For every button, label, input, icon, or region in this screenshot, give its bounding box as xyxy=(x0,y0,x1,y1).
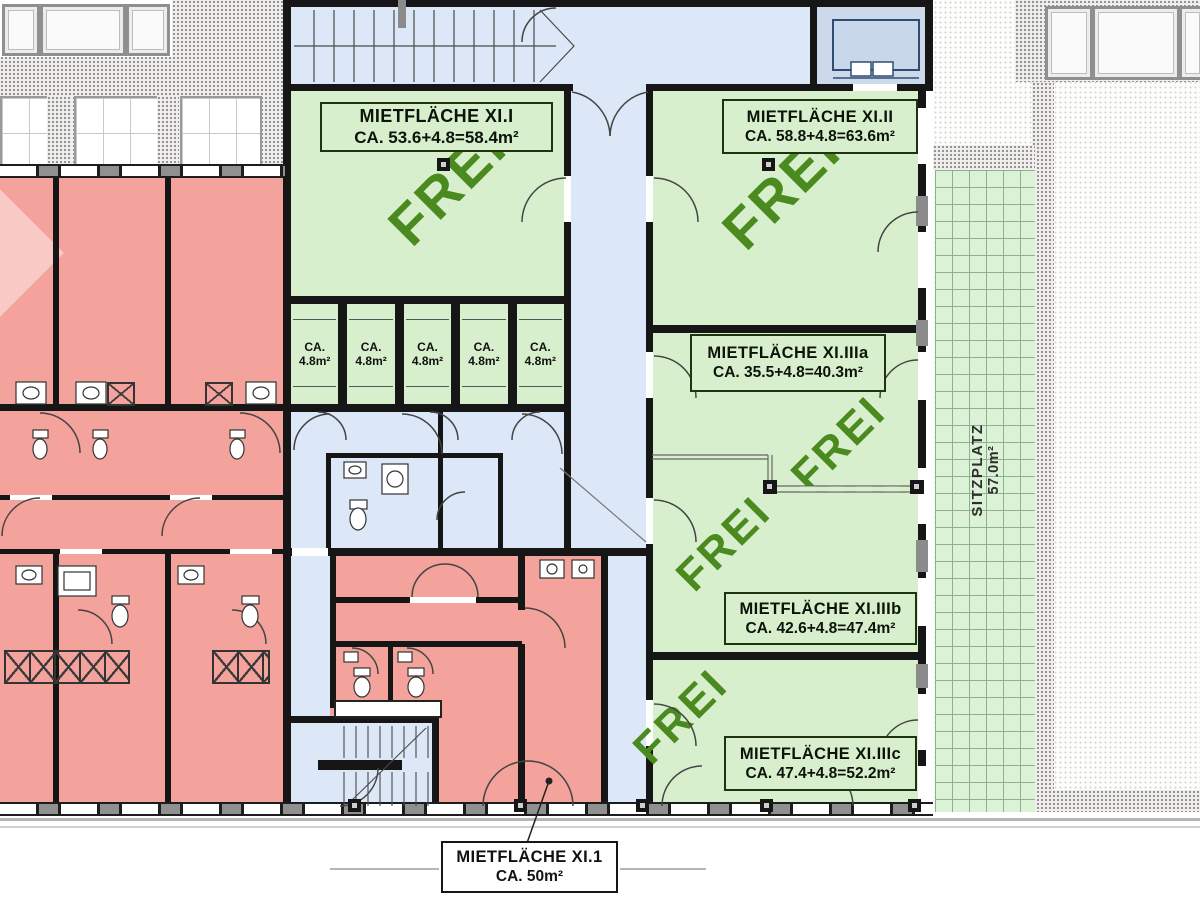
room-area: CA. 53.6+4.8=58.4m² xyxy=(354,128,518,148)
window-frame xyxy=(126,4,170,56)
corridor-lower-right xyxy=(607,556,648,808)
terrace-gravel-band-left xyxy=(1032,82,1054,792)
cell-area: 4.8m² xyxy=(525,354,556,368)
cell-area: 4.8m² xyxy=(355,354,386,368)
wardrobe-band xyxy=(4,650,130,684)
wardrobe-box xyxy=(205,382,233,406)
wall-segment xyxy=(165,554,171,806)
column-marker xyxy=(760,799,773,812)
label-xi-iiib: MIETFLÄCHE XI.IIIb CA. 42.6+4.8=47.4m² xyxy=(724,592,917,645)
skylight-divider xyxy=(157,96,178,164)
column-marker xyxy=(348,799,361,812)
skylight xyxy=(0,96,49,168)
wall-segment xyxy=(388,647,393,702)
label-xi-iiia: MIETFLÄCHE XI.IIIa CA. 35.5+4.8=40.3m² xyxy=(690,334,886,392)
wall-segment xyxy=(432,716,439,812)
room-name: MIETFLÄCHE XI.IIIa xyxy=(707,344,868,363)
wc-common-block xyxy=(285,412,650,554)
room-area: CA. 58.8+4.8=63.6m² xyxy=(745,128,895,146)
room-name: MIETFLÄCHE XI.IIIb xyxy=(739,600,901,619)
wardrobe-box xyxy=(107,382,135,406)
wall-segment xyxy=(326,453,331,553)
door-opening xyxy=(918,352,926,400)
wall-pier xyxy=(916,196,928,226)
wall-segment xyxy=(318,760,402,770)
storage-cell: CA.4.8m² xyxy=(395,304,451,404)
storage-cell: CA.4.8m² xyxy=(291,304,338,404)
wall-segment xyxy=(646,652,926,660)
window-frame xyxy=(1045,6,1093,80)
room-name: MIETFLÄCHE XI.II xyxy=(747,108,894,127)
storage-cell: CA.4.8m² xyxy=(338,304,394,404)
wall-segment xyxy=(326,453,503,458)
wall-segment xyxy=(283,548,650,556)
storage-niche xyxy=(334,700,442,718)
door-opening xyxy=(10,495,52,500)
column-marker xyxy=(437,158,450,171)
room-name: MIETFLÄCHE XI.IIIc xyxy=(740,745,901,764)
door-opening xyxy=(646,498,653,544)
wall-segment xyxy=(810,0,817,90)
room-area: CA. 47.4+4.8=52.2m² xyxy=(746,765,896,783)
window-frame xyxy=(2,4,40,56)
cell-label: CA. xyxy=(474,340,495,354)
storage-cell: CA.4.8m² xyxy=(508,304,564,404)
skylight xyxy=(180,96,262,168)
wall-segment xyxy=(283,296,571,304)
door-opening xyxy=(646,352,653,398)
facade-line xyxy=(0,818,1200,821)
skylight xyxy=(74,96,159,168)
door-opening xyxy=(918,108,926,164)
door-opening xyxy=(230,549,272,554)
floor-plan: CA.4.8m² CA.4.8m² CA.4.8m² CA.4.8m² CA.4… xyxy=(0,0,1200,901)
room-name: MIETFLÄCHE XI.1 xyxy=(456,848,602,867)
door-opening xyxy=(918,468,926,524)
cell-label: CA. xyxy=(417,340,438,354)
door-opening xyxy=(646,176,653,222)
cell-area: 4.8m² xyxy=(412,354,443,368)
label-xi-iiic: MIETFLÄCHE XI.IIIc CA. 47.4+4.8=52.2m² xyxy=(724,736,917,791)
sitzplatz-area: 57.0m² xyxy=(986,446,1002,495)
column-marker xyxy=(763,480,777,494)
column-marker xyxy=(910,480,924,494)
facade-line xyxy=(0,826,1200,828)
door-opening xyxy=(918,578,926,626)
column-marker xyxy=(762,158,775,171)
wall-segment xyxy=(283,404,571,412)
wall-segment xyxy=(438,412,443,552)
cell-label: CA. xyxy=(530,340,551,354)
window-frame xyxy=(1092,6,1180,80)
door-opening xyxy=(918,232,926,288)
cell-label: CA. xyxy=(361,340,382,354)
room-area: CA. 35.5+4.8=40.3m² xyxy=(713,364,863,382)
wall-pier xyxy=(916,664,928,688)
label-xi-i: MIETFLÄCHE XI.I CA. 53.6+4.8=58.4m² xyxy=(320,102,553,152)
door-opening xyxy=(170,495,212,500)
elevator-shaft xyxy=(817,7,925,84)
wall-segment xyxy=(165,172,171,404)
wall-pier xyxy=(916,320,928,346)
wall-segment xyxy=(283,0,933,7)
wall-segment xyxy=(646,325,926,333)
wall-segment xyxy=(518,644,525,808)
door-opening xyxy=(410,597,476,603)
cell-area: 4.8m² xyxy=(468,354,499,368)
wall-pier xyxy=(916,540,928,572)
wall-segment xyxy=(925,0,933,90)
wall-segment xyxy=(283,84,573,91)
window-frame xyxy=(1179,6,1200,80)
sitzplatz-name: SITZPLATZ xyxy=(969,423,986,516)
column-marker xyxy=(908,799,921,812)
sitzplatz-label: SITZPLATZ 57.0m² xyxy=(935,390,1035,550)
cell-area: 4.8m² xyxy=(299,354,330,368)
room-area: CA. 50m² xyxy=(496,868,563,886)
door-opening xyxy=(564,176,571,222)
room-area: CA. 42.6+4.8=47.4m² xyxy=(746,620,896,638)
terrace-gravel-band-bottom xyxy=(1032,790,1200,812)
terrace-gravel-band-sitz xyxy=(933,145,1035,170)
window-frame xyxy=(40,4,126,56)
door-opening xyxy=(853,84,897,91)
door-opening xyxy=(60,549,102,554)
label-xi-1: MIETFLÄCHE XI.1 CA. 50m² xyxy=(441,841,618,893)
storage-cell: CA.4.8m² xyxy=(451,304,507,404)
wall-segment xyxy=(498,453,503,553)
window-band-top xyxy=(0,164,285,178)
column-marker xyxy=(514,799,527,812)
window-band-bottom xyxy=(0,802,933,816)
wall-segment xyxy=(564,86,571,556)
room-name: MIETFLÄCHE XI.I xyxy=(360,106,514,127)
door-opening xyxy=(292,548,328,556)
wardrobe-band xyxy=(212,650,270,684)
cell-label: CA. xyxy=(304,340,325,354)
storage-cells: CA.4.8m² CA.4.8m² CA.4.8m² CA.4.8m² CA.4… xyxy=(291,304,564,404)
wall-segment xyxy=(601,556,608,808)
wall-segment xyxy=(0,404,285,411)
label-xi-ii: MIETFLÄCHE XI.II CA. 58.8+4.8=63.6m² xyxy=(722,99,918,154)
column-marker xyxy=(636,799,649,812)
door-opening xyxy=(918,694,926,750)
wall-segment xyxy=(53,172,59,404)
wall-pier xyxy=(398,0,406,28)
skylight-divider xyxy=(47,96,72,164)
wall-segment xyxy=(330,641,522,647)
wall-segment xyxy=(330,556,336,708)
